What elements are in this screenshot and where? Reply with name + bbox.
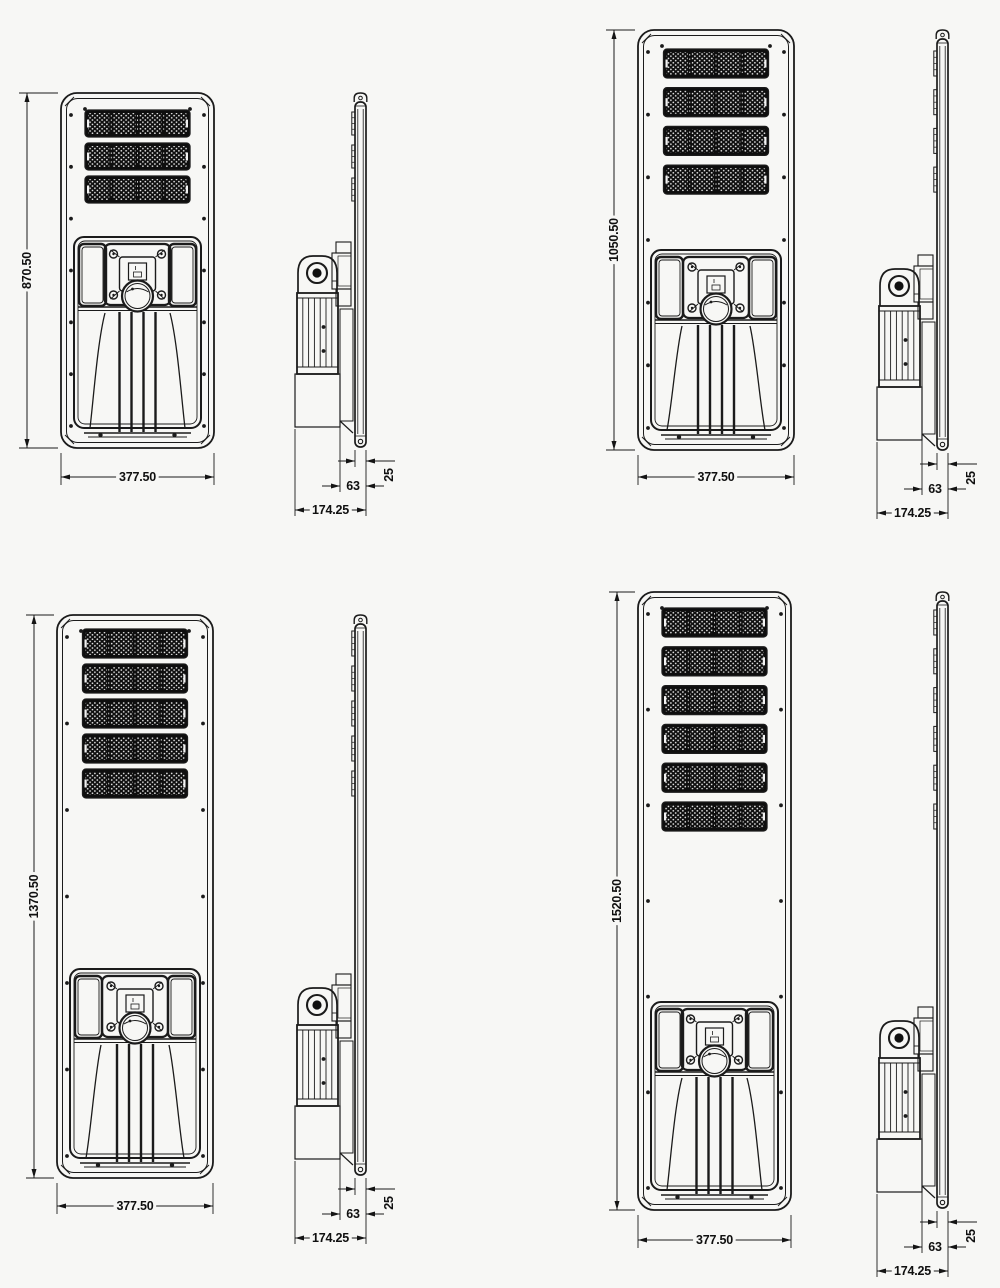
- led-module: [662, 608, 767, 637]
- pole-clamp: [295, 1025, 340, 1159]
- side-view: [295, 615, 367, 1175]
- thickness-dimension-label: 25: [382, 468, 396, 482]
- side-dimensions: 2563174.25: [877, 1190, 978, 1278]
- front-view: [638, 592, 791, 1210]
- back-cover: [922, 1074, 935, 1198]
- bracket-plates: [914, 255, 933, 319]
- led-module: [662, 686, 767, 715]
- height-dimension-label: 1050.50: [607, 218, 621, 262]
- led-module-array: [662, 608, 767, 831]
- mounting-bracket: [70, 969, 200, 1167]
- led-module: [83, 734, 188, 763]
- led-module: [662, 802, 767, 831]
- pivot-arm: [880, 269, 919, 306]
- back-cover: [340, 309, 353, 433]
- thickness-dimension-label: 25: [964, 471, 978, 485]
- led-module: [662, 724, 767, 753]
- mounting-bracket: [74, 237, 201, 437]
- led-module: [83, 769, 188, 798]
- module-fins: [352, 631, 355, 796]
- height-dimension-label: 1520.50: [610, 879, 624, 923]
- pivot-arm: [298, 256, 337, 293]
- depth-dimension-label: 174.25: [894, 506, 931, 520]
- mounting-bracket: [651, 250, 781, 439]
- led-module: [83, 664, 188, 693]
- led-module: [664, 49, 769, 78]
- heatsink-ribs: [698, 325, 734, 434]
- led-module-array: [83, 629, 188, 798]
- side-view: [877, 30, 949, 450]
- pole-entry-circle: [699, 1046, 730, 1077]
- front-view: [57, 615, 213, 1178]
- width-dimension-label: 377.50: [697, 470, 734, 484]
- led-module: [662, 763, 767, 792]
- depth-dimension-label: 174.25: [312, 503, 349, 517]
- pivot-arm: [298, 988, 337, 1025]
- pole-clamp: [295, 293, 340, 427]
- variant-streetlight-6-led-modules: 1520.50377.502563174.25: [609, 592, 978, 1278]
- panel-slab: [354, 93, 367, 447]
- mount-depth-dimension-label: 63: [928, 482, 942, 496]
- pivot-arm: [880, 1021, 919, 1058]
- thickness-dimension-label: 25: [382, 1196, 396, 1210]
- led-module: [662, 647, 767, 676]
- led-module: [85, 110, 190, 137]
- pole-entry-circle: [122, 281, 153, 312]
- led-module: [85, 143, 190, 170]
- bracket-plates: [332, 974, 351, 1038]
- led-module: [85, 176, 190, 203]
- led-module-array: [85, 110, 190, 203]
- side-dimensions: 2563174.25: [295, 425, 396, 517]
- heatsink-ribs: [120, 312, 156, 432]
- panel-slab: [936, 592, 949, 1208]
- front-view: [61, 93, 214, 448]
- back-cover: [922, 322, 935, 446]
- pole-clamp: [877, 306, 922, 440]
- module-fins: [352, 112, 355, 201]
- technical-drawing: 870.50377.502563174.251050.50377.5025631…: [0, 0, 1000, 1288]
- led-module: [664, 165, 769, 194]
- heatsink-ribs: [117, 1044, 153, 1162]
- led-module: [83, 629, 188, 658]
- width-dimension-label: 377.50: [696, 1233, 733, 1247]
- led-module: [83, 699, 188, 728]
- bracket-plates: [914, 1007, 933, 1071]
- thickness-dimension-label: 25: [964, 1229, 978, 1243]
- depth-dimension-label: 174.25: [894, 1264, 931, 1278]
- width-dimension-label: 377.50: [116, 1199, 153, 1213]
- variant-streetlight-3-led-modules: 870.50377.502563174.25: [19, 93, 396, 517]
- mounting-bracket: [651, 1002, 778, 1199]
- width-dimension-label: 377.50: [119, 470, 156, 484]
- depth-dimension-label: 174.25: [312, 1231, 349, 1245]
- pole-entry-circle: [701, 294, 732, 325]
- side-view: [877, 592, 949, 1208]
- drawing-sheet: 870.50377.502563174.251050.50377.5025631…: [0, 0, 1000, 1288]
- height-dimension-label: 870.50: [20, 252, 34, 289]
- mount-depth-dimension-label: 63: [346, 479, 360, 493]
- bracket-plates: [332, 242, 351, 306]
- side-view: [295, 93, 367, 447]
- heatsink-ribs: [697, 1077, 733, 1194]
- variant-streetlight-4-led-modules: 1050.50377.502563174.25: [606, 30, 978, 520]
- led-module-array: [664, 49, 769, 194]
- pole-clamp: [877, 1058, 922, 1192]
- side-dimensions: 2563174.25: [877, 438, 978, 520]
- panel-slab: [354, 615, 367, 1175]
- variant-streetlight-5-led-modules: 1370.50377.502563174.25: [26, 615, 396, 1245]
- height-dimension-label: 1370.50: [27, 874, 41, 918]
- front-view: [638, 30, 794, 450]
- side-dimensions: 2563174.25: [295, 1157, 396, 1245]
- led-module: [664, 126, 769, 155]
- mount-depth-dimension-label: 63: [346, 1207, 360, 1221]
- led-module: [664, 88, 769, 117]
- panel-slab: [936, 30, 949, 450]
- back-cover: [340, 1041, 353, 1165]
- pole-entry-circle: [120, 1013, 151, 1044]
- mount-depth-dimension-label: 63: [928, 1240, 942, 1254]
